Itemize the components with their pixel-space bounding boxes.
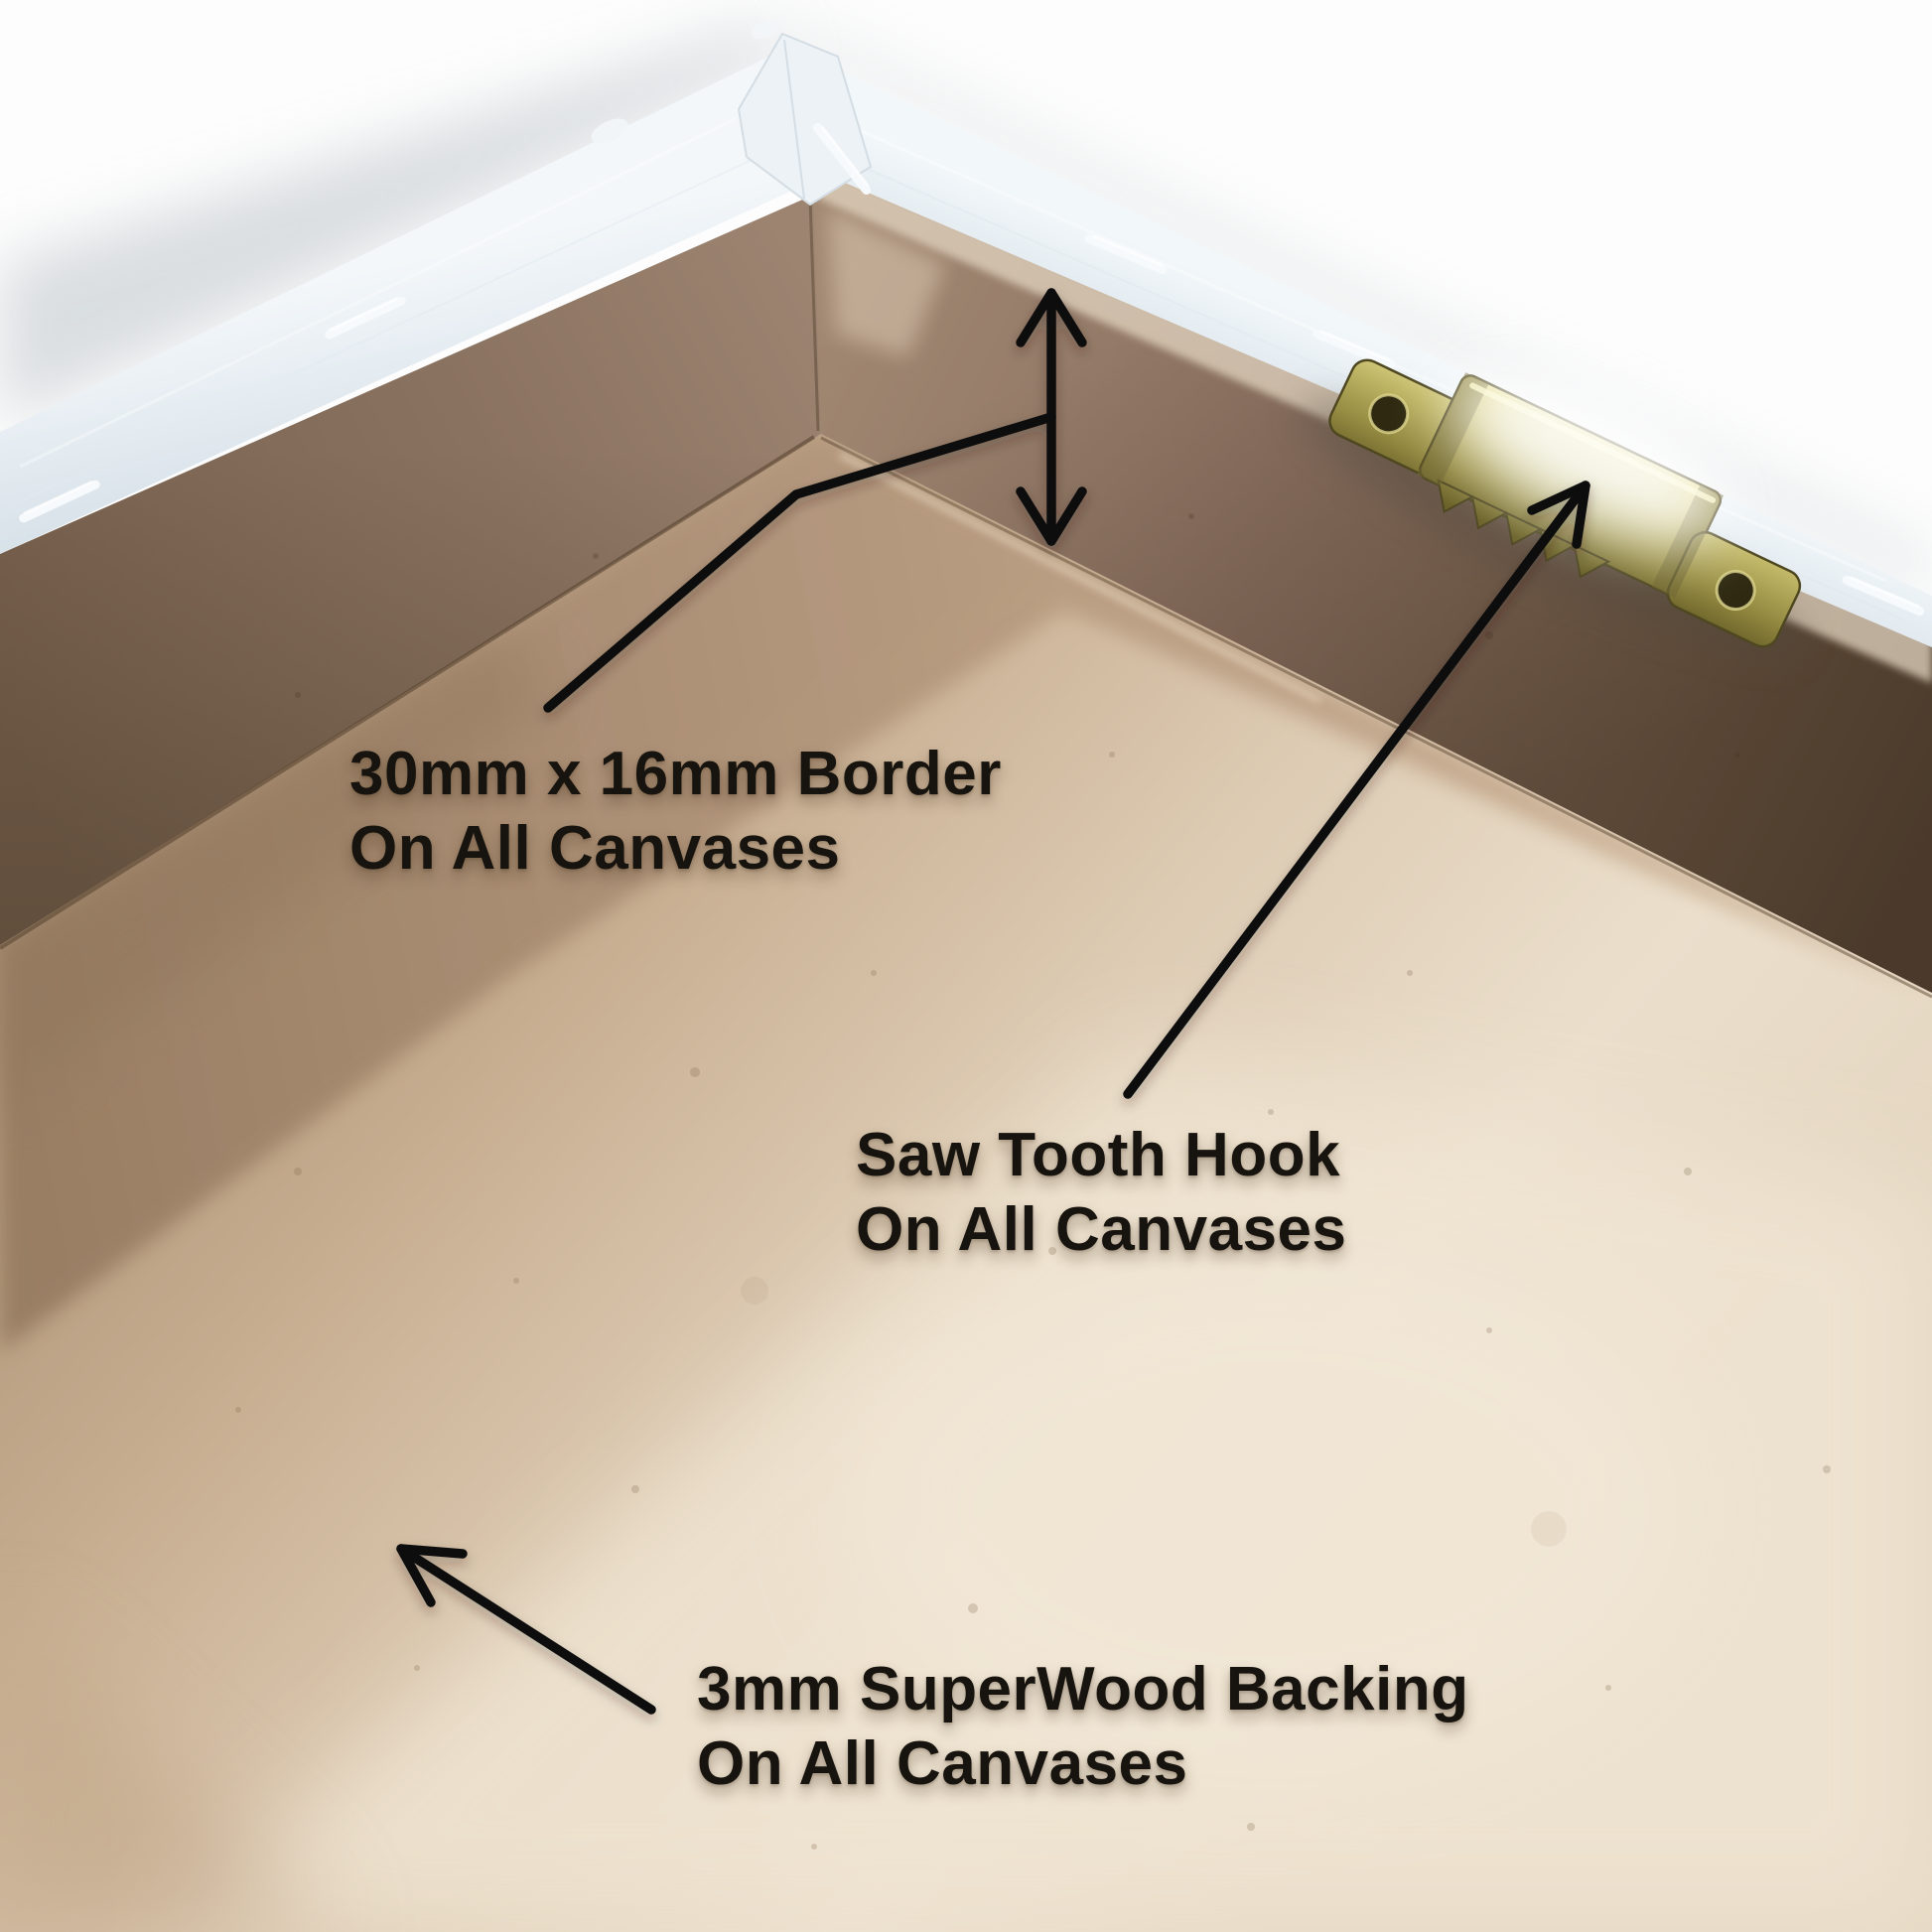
saw-tooth-hook-label: Saw Tooth Hook On All Canvases (856, 1118, 1347, 1267)
label-line: On All Canvases (856, 1192, 1347, 1267)
label-line: 30mm x 16mm Border (349, 737, 1002, 811)
label-line: On All Canvases (349, 811, 1002, 886)
canvas-back-photo: 30mm x 16mm Border On All Canvases Saw T… (0, 0, 1932, 1932)
photo-illustration (0, 0, 1932, 1932)
label-line: Saw Tooth Hook (856, 1118, 1347, 1192)
label-line: 3mm SuperWood Backing (697, 1652, 1469, 1726)
border-size-label: 30mm x 16mm Border On All Canvases (349, 737, 1002, 886)
backing-label: 3mm SuperWood Backing On All Canvases (697, 1652, 1469, 1801)
label-line: On All Canvases (697, 1726, 1469, 1801)
